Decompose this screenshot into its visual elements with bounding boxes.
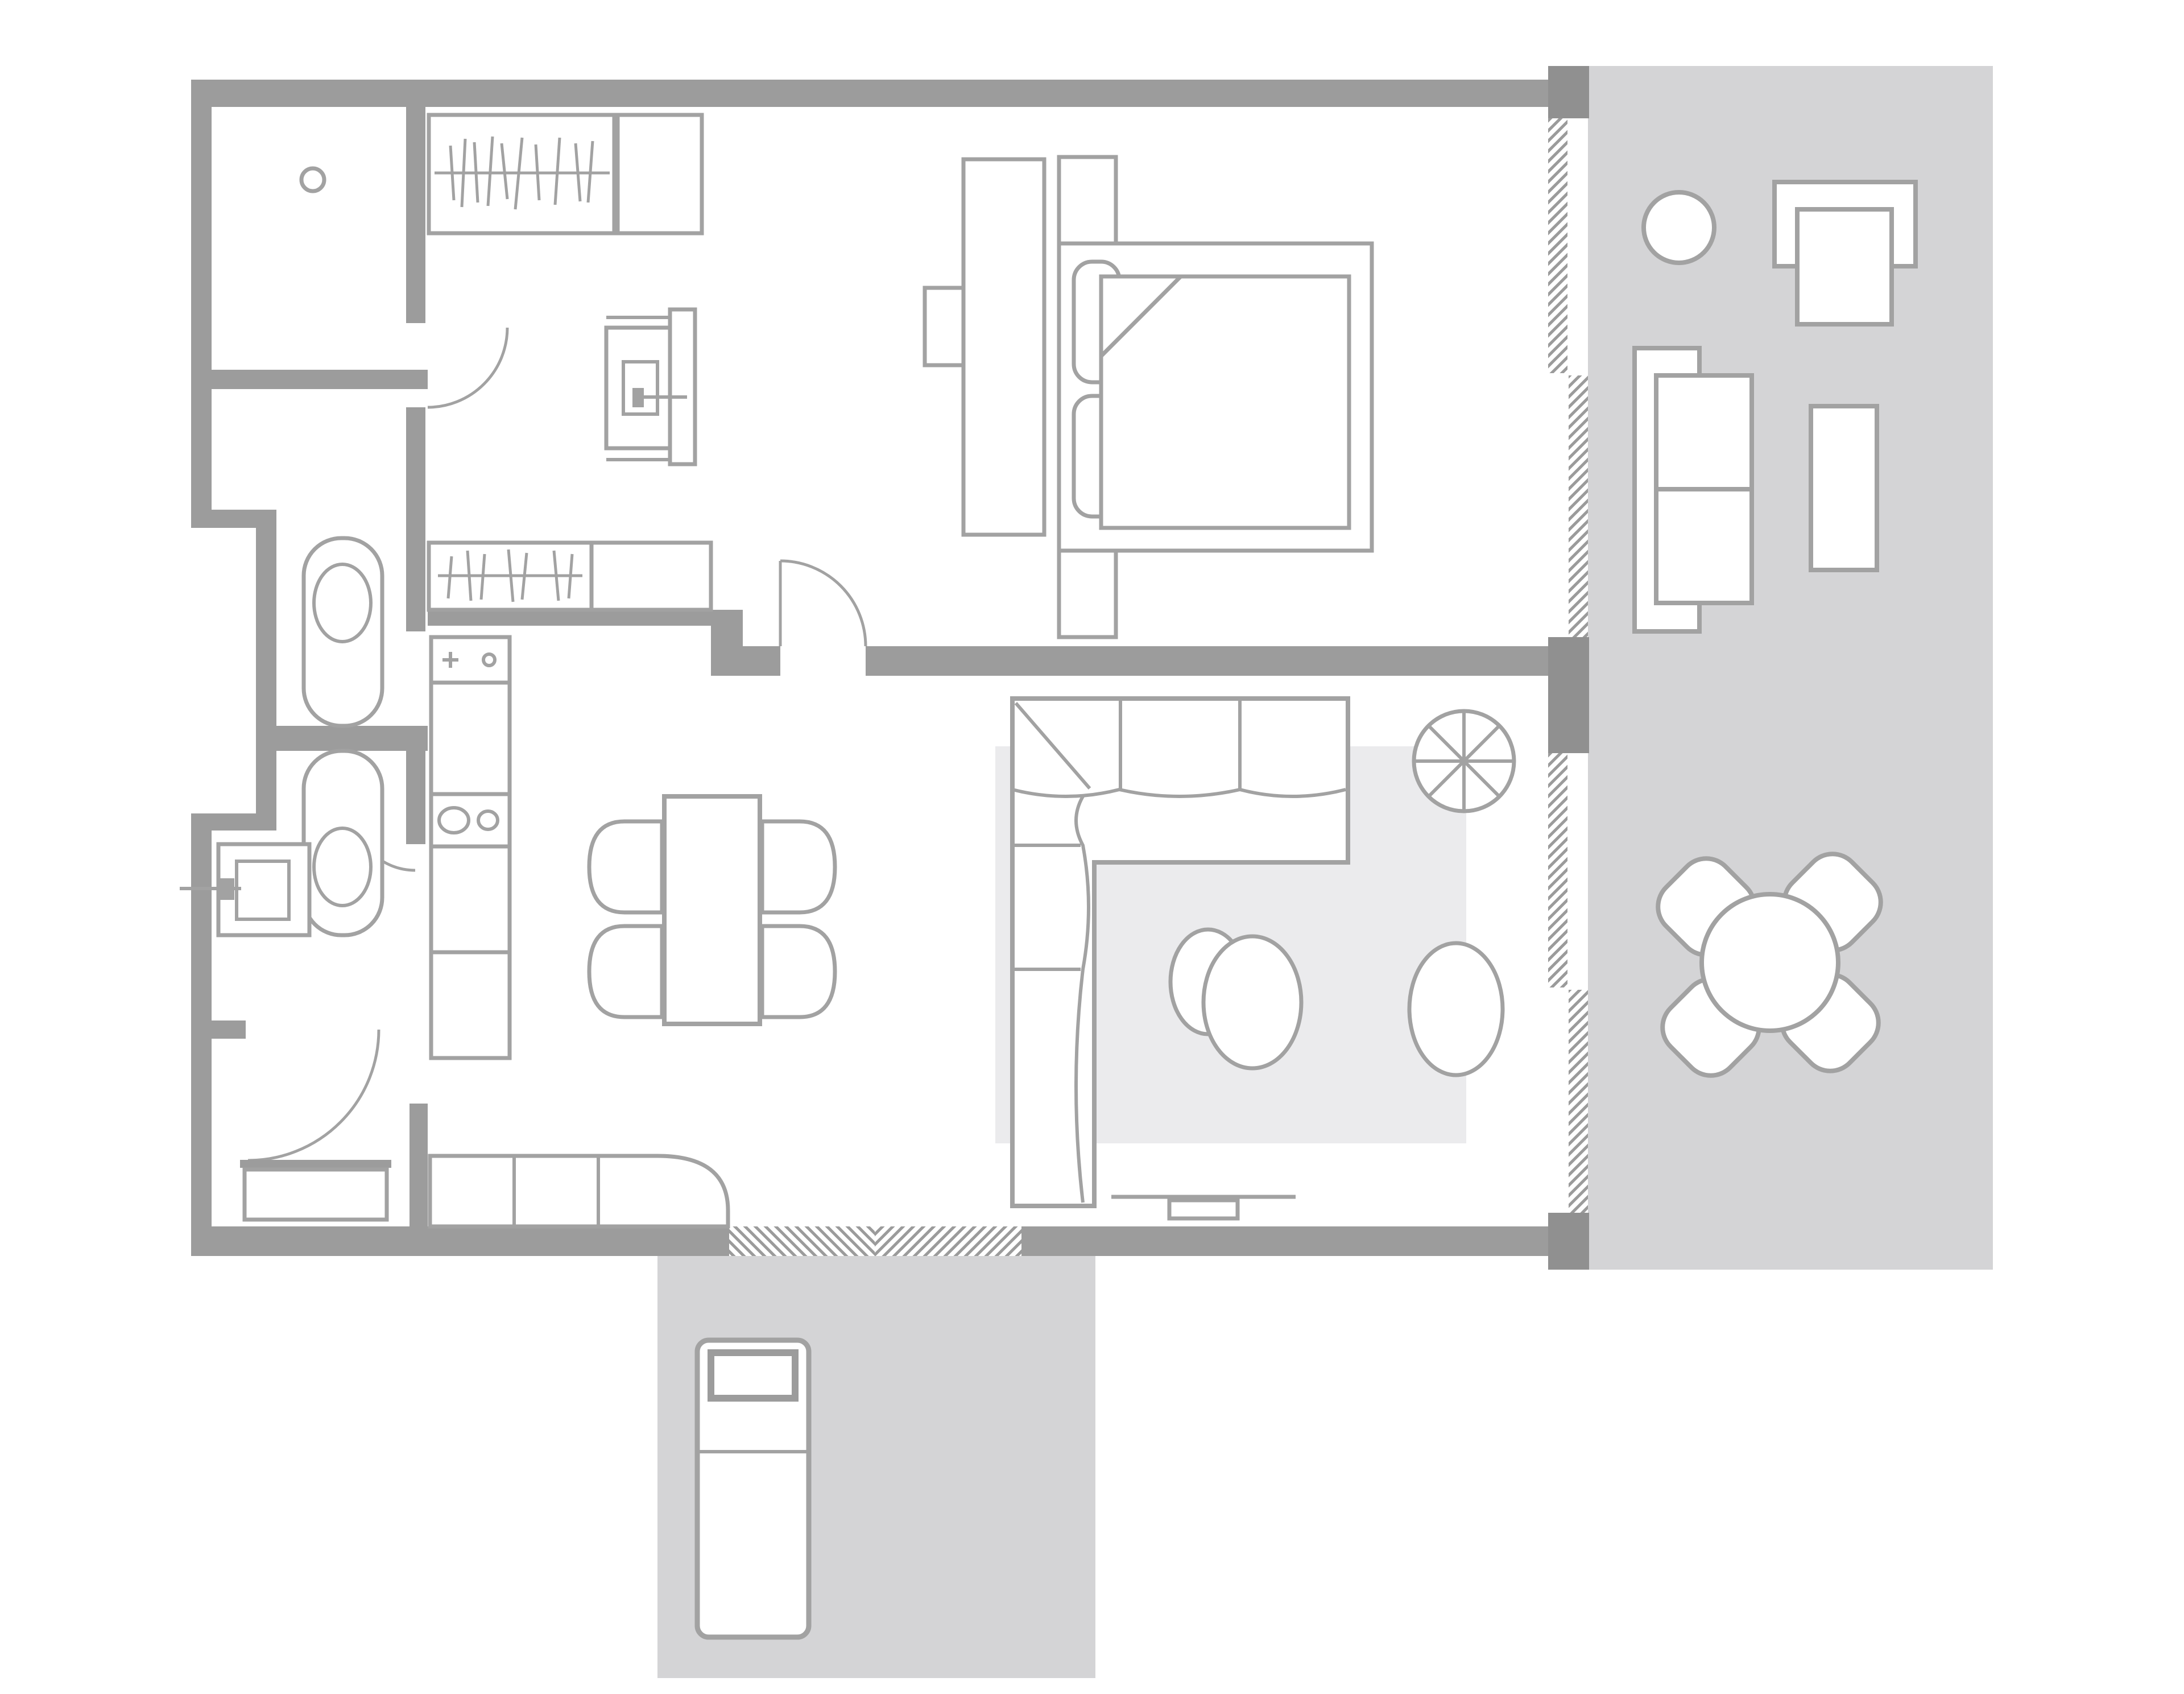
toilet-lower — [304, 751, 382, 935]
bed-side-shelf — [925, 288, 963, 365]
dining-chair-right-1 — [762, 821, 835, 912]
bed-cabinet-bottom — [1059, 551, 1116, 637]
dining-chair-right-2 — [762, 926, 835, 1017]
closet-shelf-section — [618, 115, 702, 233]
bottom-window-hatch-right — [875, 1226, 1021, 1256]
window-wall-middle-block — [1548, 637, 1589, 753]
vanity-side-panel — [670, 309, 695, 464]
kitchen-counter-1 — [431, 683, 510, 794]
dining-table — [664, 796, 760, 1024]
bottom-wall-right — [1021, 1226, 1548, 1256]
wardrobe-bottom-wall — [428, 610, 711, 626]
bedroom-door-arc — [780, 561, 866, 646]
bottom-window-hatch-left — [729, 1226, 875, 1256]
bed-cabinet-top — [1059, 157, 1116, 243]
bed-headboard-panel — [963, 159, 1044, 535]
toilet-upper — [304, 538, 382, 726]
pouf-large — [1203, 936, 1301, 1068]
room-divider-wall-left — [743, 646, 780, 676]
floor-plan-root — [180, 66, 1993, 1678]
bottom-wall-left — [191, 1226, 729, 1256]
bathroom-right-wall-upper — [406, 107, 425, 323]
wc-right-wall — [406, 751, 425, 844]
patio-armchair-seat — [1797, 209, 1892, 324]
entry-bench-row — [430, 1156, 728, 1226]
window-hatch-3 — [1548, 753, 1567, 988]
vanity-faucet-knob — [632, 388, 644, 407]
floor-plan-svg — [0, 0, 2184, 1694]
left-jog-vertical-wall — [256, 510, 276, 813]
patio-side-table — [1811, 406, 1877, 570]
entry-door-arc — [248, 1030, 379, 1160]
window-wall-corner-block — [1548, 66, 1589, 118]
left-wall-lower — [191, 1039, 212, 1256]
wardrobe2-shelf-section — [591, 543, 711, 610]
top-wall — [191, 80, 1549, 107]
room-divider-wall-right — [866, 646, 1548, 676]
dining-chair-left-2 — [589, 926, 662, 1017]
patio-sofa-seat-1 — [1656, 375, 1752, 489]
window-wall-bottom-block — [1548, 1213, 1589, 1270]
bathroom-bottom-wall — [192, 370, 428, 389]
left-wall-upper — [191, 80, 212, 528]
window-hatch-2 — [1569, 375, 1588, 637]
shower-drain-circle — [301, 168, 324, 191]
patio-round-table — [1702, 894, 1838, 1031]
kitchen-counter-2 — [431, 846, 510, 952]
wc-divider-wall — [267, 726, 428, 751]
patio-side-table-round — [1644, 192, 1714, 263]
tv-unit — [1169, 1200, 1238, 1218]
bathroom-door-arc — [428, 328, 507, 407]
left-wall-middle — [191, 813, 212, 1020]
entry-cabinet — [245, 1170, 387, 1220]
entry-wall-stub — [409, 1104, 428, 1226]
bathroom-right-wall-lower — [406, 407, 425, 631]
washbasin-faucet-knob — [218, 878, 234, 900]
window-hatch-4 — [1569, 990, 1588, 1213]
sun-lounger-headrest — [711, 1353, 795, 1398]
washbasin-room-bottom-wall — [191, 1020, 246, 1039]
kitchen-counter-3 — [431, 952, 510, 1058]
window-hatch-1 — [1548, 118, 1567, 373]
dining-chair-left-1 — [589, 821, 662, 912]
pouf-right — [1409, 943, 1503, 1075]
floor-plan-page — [0, 0, 2184, 1694]
patio-sofa-seat-2 — [1656, 489, 1752, 603]
wall-step-connector — [711, 610, 743, 676]
